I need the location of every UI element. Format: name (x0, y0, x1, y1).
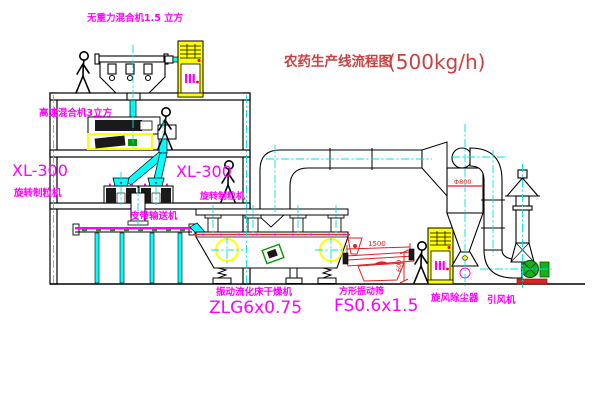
control-cabinet-upper (178, 41, 203, 97)
page-title: 农药生产线流程图 (283, 53, 392, 70)
label-screen-model: FS0.6x1.5 (334, 296, 418, 316)
label-gravity-mixer: 无重力混合机1.5 立方 (86, 12, 184, 24)
page-title-capacity: (500kg/h) (388, 50, 485, 74)
label-cyclone: 旋风除尘器 (430, 292, 479, 304)
label-granulator-left-model: XL-300 (12, 161, 68, 180)
control-cabinet-lower (428, 228, 453, 284)
drawing-svg: 无重力混合机1.5 立方 农药生产线流程图 (500kg/h) 高速混合机3立方… (0, 0, 600, 403)
label-belt-conveyor: 皮带输送机 (129, 210, 178, 222)
label-fan: 引风机 (487, 294, 516, 306)
label-granulator-right-model: XL-300 (176, 162, 232, 181)
label-granulator-right-name: 旋转制粒机 (199, 190, 245, 202)
person-figure-4 (414, 242, 428, 283)
label-dryer-model: ZLG6x0.75 (209, 298, 302, 318)
dim-screen-length: 1500 (368, 240, 386, 248)
belt-conveyor (73, 223, 205, 283)
label-granulator-left-name: 旋转制粒机 (13, 187, 62, 199)
dim-screen-height: 600 (395, 260, 403, 272)
dryer-exhaust-duct (260, 142, 447, 209)
fluid-bed-dryer (193, 209, 362, 284)
person-figure-1 (76, 52, 90, 93)
vibrating-screen (343, 243, 414, 283)
label-high-speed-mixer: 高速混合机3立方 (39, 107, 113, 119)
label-dryer-name: 振动流化床干燥机 (216, 286, 293, 298)
pesticide-line-flow-diagram: 无重力混合机1.5 立方 农药生产线流程图 (500kg/h) 高速混合机3立方… (0, 0, 600, 403)
dim-cyclone-diameter: Φ800 (454, 178, 472, 186)
